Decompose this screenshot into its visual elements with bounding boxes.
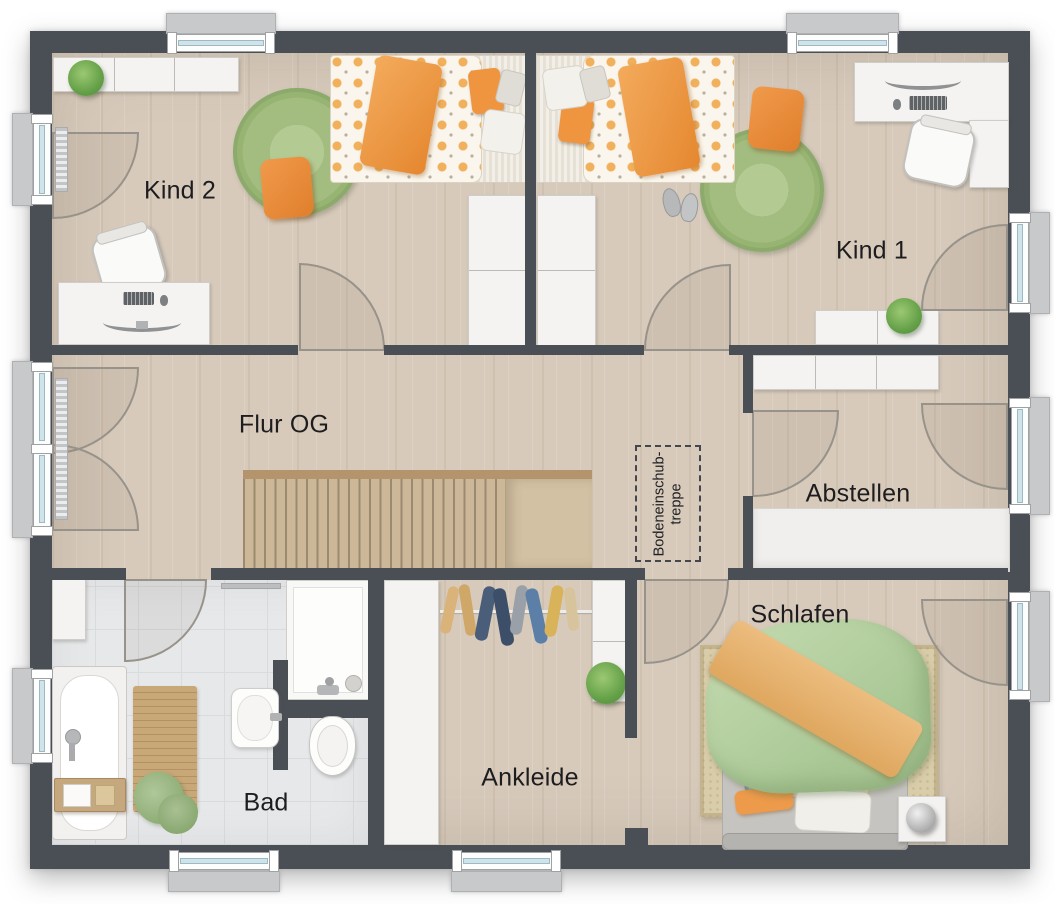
door-swing-abstellen-window: [922, 404, 1007, 489]
room-label-ankleide: Ankleide: [481, 764, 579, 793]
room-label-schlafen: Schlafen: [751, 601, 850, 630]
window-kind2-left-door: [12, 113, 33, 206]
floorplan: Bodeneinschub- treppe: [0, 0, 1054, 904]
room-label-flur: Flur OG: [239, 411, 329, 440]
wall-bad-east: [368, 580, 384, 845]
window-bad-left: [12, 668, 33, 764]
window-schlafen-right-door: [1029, 591, 1050, 702]
room-label-kind1: Kind 1: [836, 237, 908, 266]
wall-hall-south-1: [52, 568, 126, 580]
window-kind1-top: [786, 13, 899, 34]
wall-ankleide-east-stub: [625, 828, 648, 845]
door-swing-schlafen: [645, 580, 728, 663]
door-swing-bad: [125, 580, 206, 661]
door-swing-kind1: [645, 265, 730, 350]
window-abstellen-right-door: [1029, 397, 1050, 515]
wall-kids-divider: [525, 53, 536, 350]
radiator: [55, 378, 68, 520]
window-ankleide-bottom: [451, 871, 562, 892]
window-flur-left-double-door: [12, 361, 33, 538]
window-kind2-top: [166, 13, 276, 34]
radiator: [55, 127, 68, 192]
room-label-abstellen: Abstellen: [806, 480, 911, 509]
window-kind1-right-door: [1029, 212, 1050, 314]
room-label-bad: Bad: [243, 789, 288, 818]
wall-abstellen-west-upper: [743, 355, 753, 413]
wall-hall-north-2: [384, 345, 644, 355]
door-swing-kind2: [300, 264, 384, 350]
wall-abstellen-west-lower: [743, 496, 753, 572]
door-swing-schlafen-window: [922, 600, 1007, 685]
wall-hall-south-2: [211, 568, 645, 580]
window-bad-bottom: [168, 871, 280, 892]
wall-ankleide-east: [625, 580, 637, 738]
wall-hall-north-1: [52, 345, 298, 355]
wall-hall-north-3: [729, 345, 1008, 355]
door-swing-kind1-window: [922, 225, 1007, 310]
wall-hall-south-3: [728, 568, 1008, 580]
room-label-kind2: Kind 2: [144, 177, 216, 206]
